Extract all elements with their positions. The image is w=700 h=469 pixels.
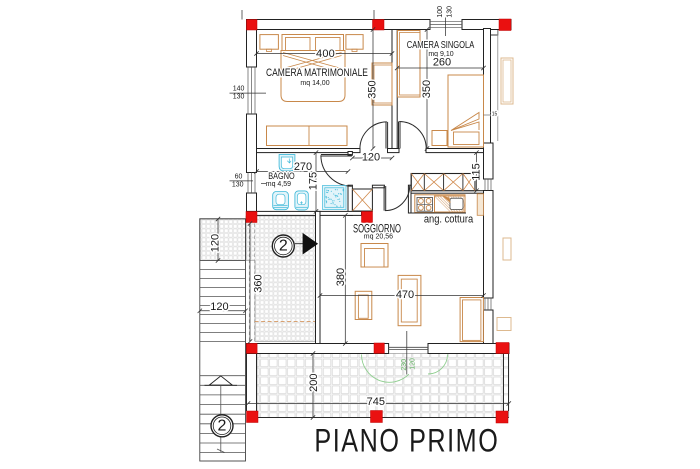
- svg-text:100: 100: [437, 6, 444, 18]
- svg-text:400: 400: [316, 48, 335, 60]
- svg-text:120: 120: [362, 151, 380, 163]
- svg-text:200: 200: [308, 374, 320, 392]
- svg-text:15: 15: [492, 112, 498, 118]
- svg-text:260: 260: [433, 57, 451, 69]
- svg-text:175: 175: [307, 172, 319, 190]
- svg-text:2: 2: [279, 238, 288, 255]
- svg-text:BAGNO: BAGNO: [268, 171, 294, 181]
- svg-text:120: 120: [210, 234, 222, 252]
- svg-text:130: 130: [447, 6, 454, 18]
- svg-text:380: 380: [335, 268, 347, 286]
- svg-text:CAMERA MATRIMONIALE: CAMERA MATRIMONIALE: [266, 67, 368, 79]
- svg-text:PIANO PRIMO: PIANO PRIMO: [314, 424, 499, 460]
- svg-text:360: 360: [253, 274, 265, 292]
- svg-text:120: 120: [409, 358, 416, 370]
- svg-text:350: 350: [421, 80, 433, 98]
- svg-text:CAMERA SINGOLA: CAMERA SINGOLA: [407, 39, 475, 50]
- svg-text:350: 350: [367, 80, 379, 98]
- svg-text:115: 115: [470, 163, 482, 181]
- svg-text:120: 120: [210, 301, 228, 313]
- svg-text:270: 270: [294, 161, 312, 173]
- svg-text:mq 4,59: mq 4,59: [266, 181, 291, 188]
- svg-text:745: 745: [367, 396, 385, 408]
- svg-text:2: 2: [218, 418, 227, 435]
- svg-text:130: 130: [233, 94, 245, 101]
- svg-text:mq 20,56: mq 20,56: [364, 234, 393, 241]
- svg-text:60: 60: [235, 173, 243, 180]
- svg-text:230: 230: [401, 359, 408, 371]
- svg-text:mq 14,00: mq 14,00: [300, 80, 329, 87]
- svg-text:140: 140: [233, 86, 245, 93]
- svg-text:ang. cottura: ang. cottura: [424, 214, 474, 226]
- svg-text:130: 130: [232, 181, 244, 188]
- svg-text:470: 470: [396, 289, 414, 301]
